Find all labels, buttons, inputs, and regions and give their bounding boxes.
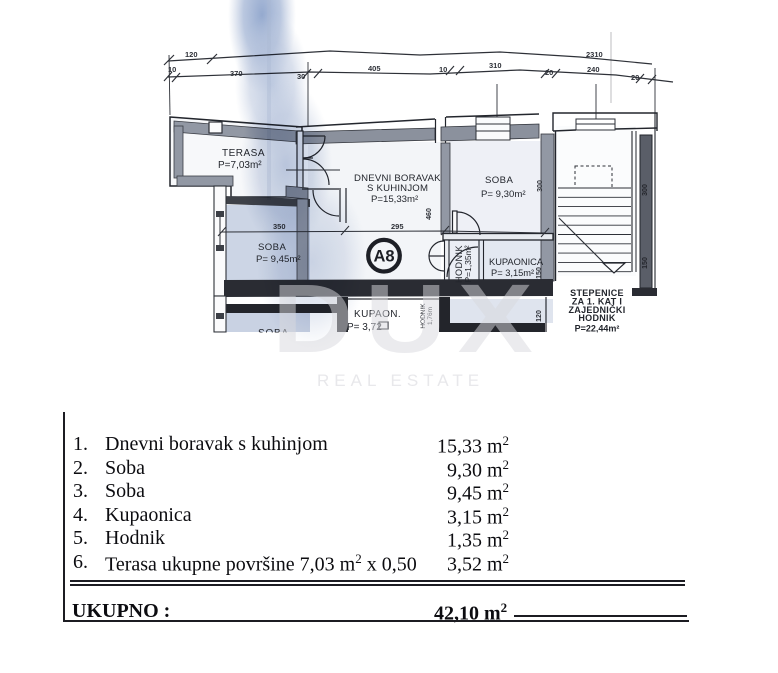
svg-text:2310: 2310 xyxy=(586,50,603,59)
svg-text:P=15,33m²: P=15,33m² xyxy=(371,194,419,205)
svg-text:310: 310 xyxy=(489,61,502,70)
svg-text:460: 460 xyxy=(426,208,433,220)
svg-text:240: 240 xyxy=(587,65,600,74)
svg-text:P= 9,30m²: P= 9,30m² xyxy=(481,189,526,200)
svg-text:20: 20 xyxy=(545,68,553,77)
svg-text:300: 300 xyxy=(537,180,544,192)
svg-text:300: 300 xyxy=(642,184,649,196)
svg-text:SOBA: SOBA xyxy=(485,175,513,186)
svg-text:DUX: DUX xyxy=(272,265,544,373)
svg-text:S KUHINJOM: S KUHINJOM xyxy=(367,183,428,194)
svg-text:150: 150 xyxy=(642,257,649,269)
svg-text:120: 120 xyxy=(185,50,198,59)
svg-text:405: 405 xyxy=(368,64,381,73)
svg-text:20: 20 xyxy=(631,73,639,82)
svg-text:10: 10 xyxy=(439,65,447,74)
svg-text:295: 295 xyxy=(391,222,404,231)
svg-text:REAL ESTATE: REAL ESTATE xyxy=(317,371,484,390)
svg-text:P=22,44m²: P=22,44m² xyxy=(575,324,620,334)
svg-text:A8: A8 xyxy=(373,248,394,266)
svg-text:HODNIK: HODNIK xyxy=(578,313,615,323)
